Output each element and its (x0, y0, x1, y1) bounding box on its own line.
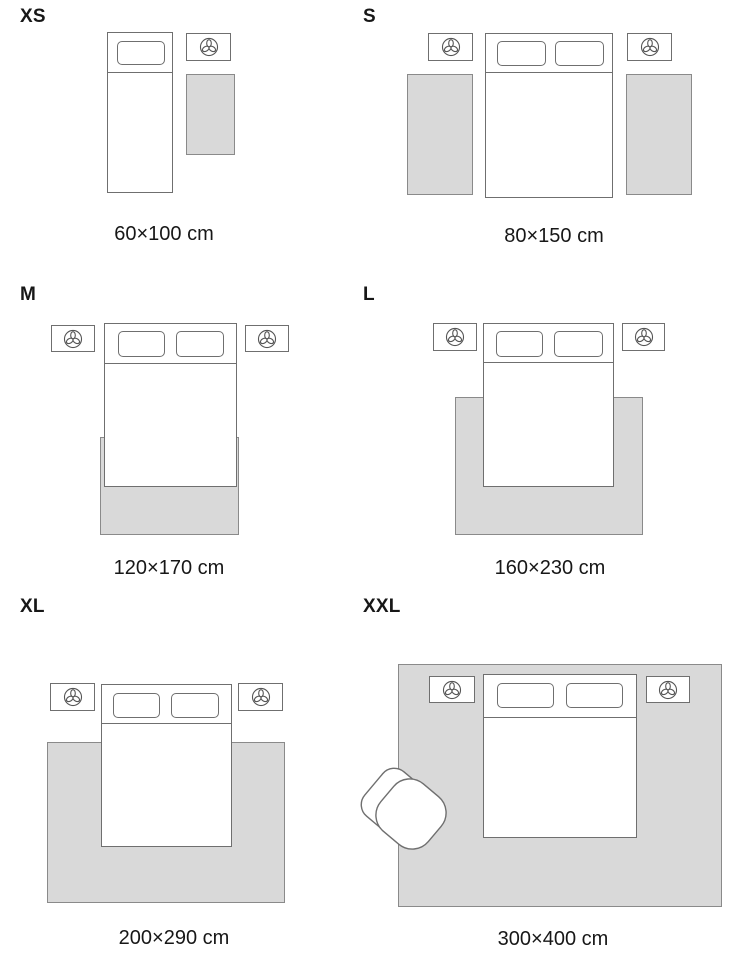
plant-icon (62, 686, 84, 708)
nightstand-right (245, 325, 289, 352)
size-dimensions-l: 160×230 cm (470, 556, 630, 580)
bed (104, 323, 237, 487)
size-label-l: L (363, 284, 375, 306)
pillow-left (118, 331, 165, 357)
bed-sheet-line (483, 362, 614, 363)
nightstand-left (50, 683, 95, 711)
bed-sheet-line (101, 723, 232, 724)
pillow-left (497, 683, 554, 708)
plant-icon (198, 36, 220, 58)
plant-icon (256, 328, 278, 350)
plant-icon (440, 36, 462, 58)
size-label-xl: XL (20, 596, 45, 618)
size-label-xxl: XXL (363, 596, 401, 618)
nightstand-left (433, 323, 477, 351)
plant-icon (639, 36, 661, 58)
nightstand (186, 33, 231, 61)
nightstand-left (428, 33, 473, 61)
bed-sheet-line (483, 717, 637, 718)
nightstand-left (51, 325, 95, 352)
bed-sheet-line (104, 363, 237, 364)
pillow-right (566, 683, 623, 708)
plant-icon (62, 328, 84, 350)
size-dimensions-s: 80×150 cm (474, 224, 634, 248)
size-label-m: M (20, 284, 36, 306)
nightstand-right (627, 33, 672, 61)
bed (107, 32, 173, 193)
bed (483, 323, 614, 487)
plant-icon (250, 686, 272, 708)
size-dimensions-xl: 200×290 cm (94, 926, 254, 950)
bed (101, 684, 232, 847)
rug-size-guide: XS 60×100 cm S 80×150 cm M (0, 0, 740, 960)
pillow-right (171, 693, 219, 718)
size-dimensions-m: 120×170 cm (89, 556, 249, 580)
plant-icon (441, 679, 463, 701)
bed-sheet-line (107, 72, 173, 73)
nightstand-right (622, 323, 665, 351)
plant-icon (444, 326, 466, 348)
rug-right (626, 74, 692, 195)
bed (483, 674, 637, 838)
pillow (117, 41, 165, 65)
size-dimensions-xs: 60×100 cm (84, 222, 244, 246)
size-label-s: S (363, 6, 376, 28)
plant-icon (633, 326, 655, 348)
nightstand-right (238, 683, 283, 711)
size-dimensions-xxl: 300×400 cm (473, 927, 633, 951)
pillow-right (176, 331, 224, 357)
bed (485, 33, 613, 198)
plant-icon (657, 679, 679, 701)
pillow-right (554, 331, 603, 357)
pillow-left (497, 41, 546, 66)
pillow-left (496, 331, 543, 357)
size-label-xs: XS (20, 6, 46, 28)
pillow-right (555, 41, 604, 66)
nightstand-right (646, 676, 690, 703)
rug-left (407, 74, 473, 195)
rug (186, 74, 235, 155)
bed-sheet-line (485, 72, 613, 73)
nightstand-left (429, 676, 475, 703)
armchair-icon (358, 756, 450, 852)
pillow-left (113, 693, 160, 718)
